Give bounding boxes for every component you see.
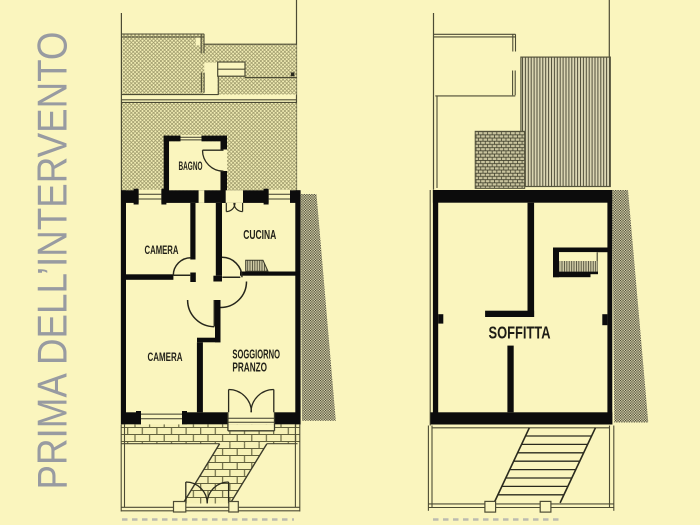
svg-text:CUCINA: CUCINA	[243, 228, 276, 242]
svg-text:CAMERA: CAMERA	[148, 350, 183, 364]
svg-text:PRANZO: PRANZO	[232, 361, 267, 375]
svg-text:SOGGIORNO: SOGGIORNO	[232, 347, 280, 361]
svg-text:BAGNO: BAGNO	[179, 161, 203, 173]
svg-text:SOFFITTA: SOFFITTA	[489, 323, 551, 343]
svg-text:CAMERA: CAMERA	[145, 243, 179, 257]
svg-text:PRIMA DELL’INTERVENTO: PRIMA DELL’INTERVENTO	[29, 32, 76, 490]
